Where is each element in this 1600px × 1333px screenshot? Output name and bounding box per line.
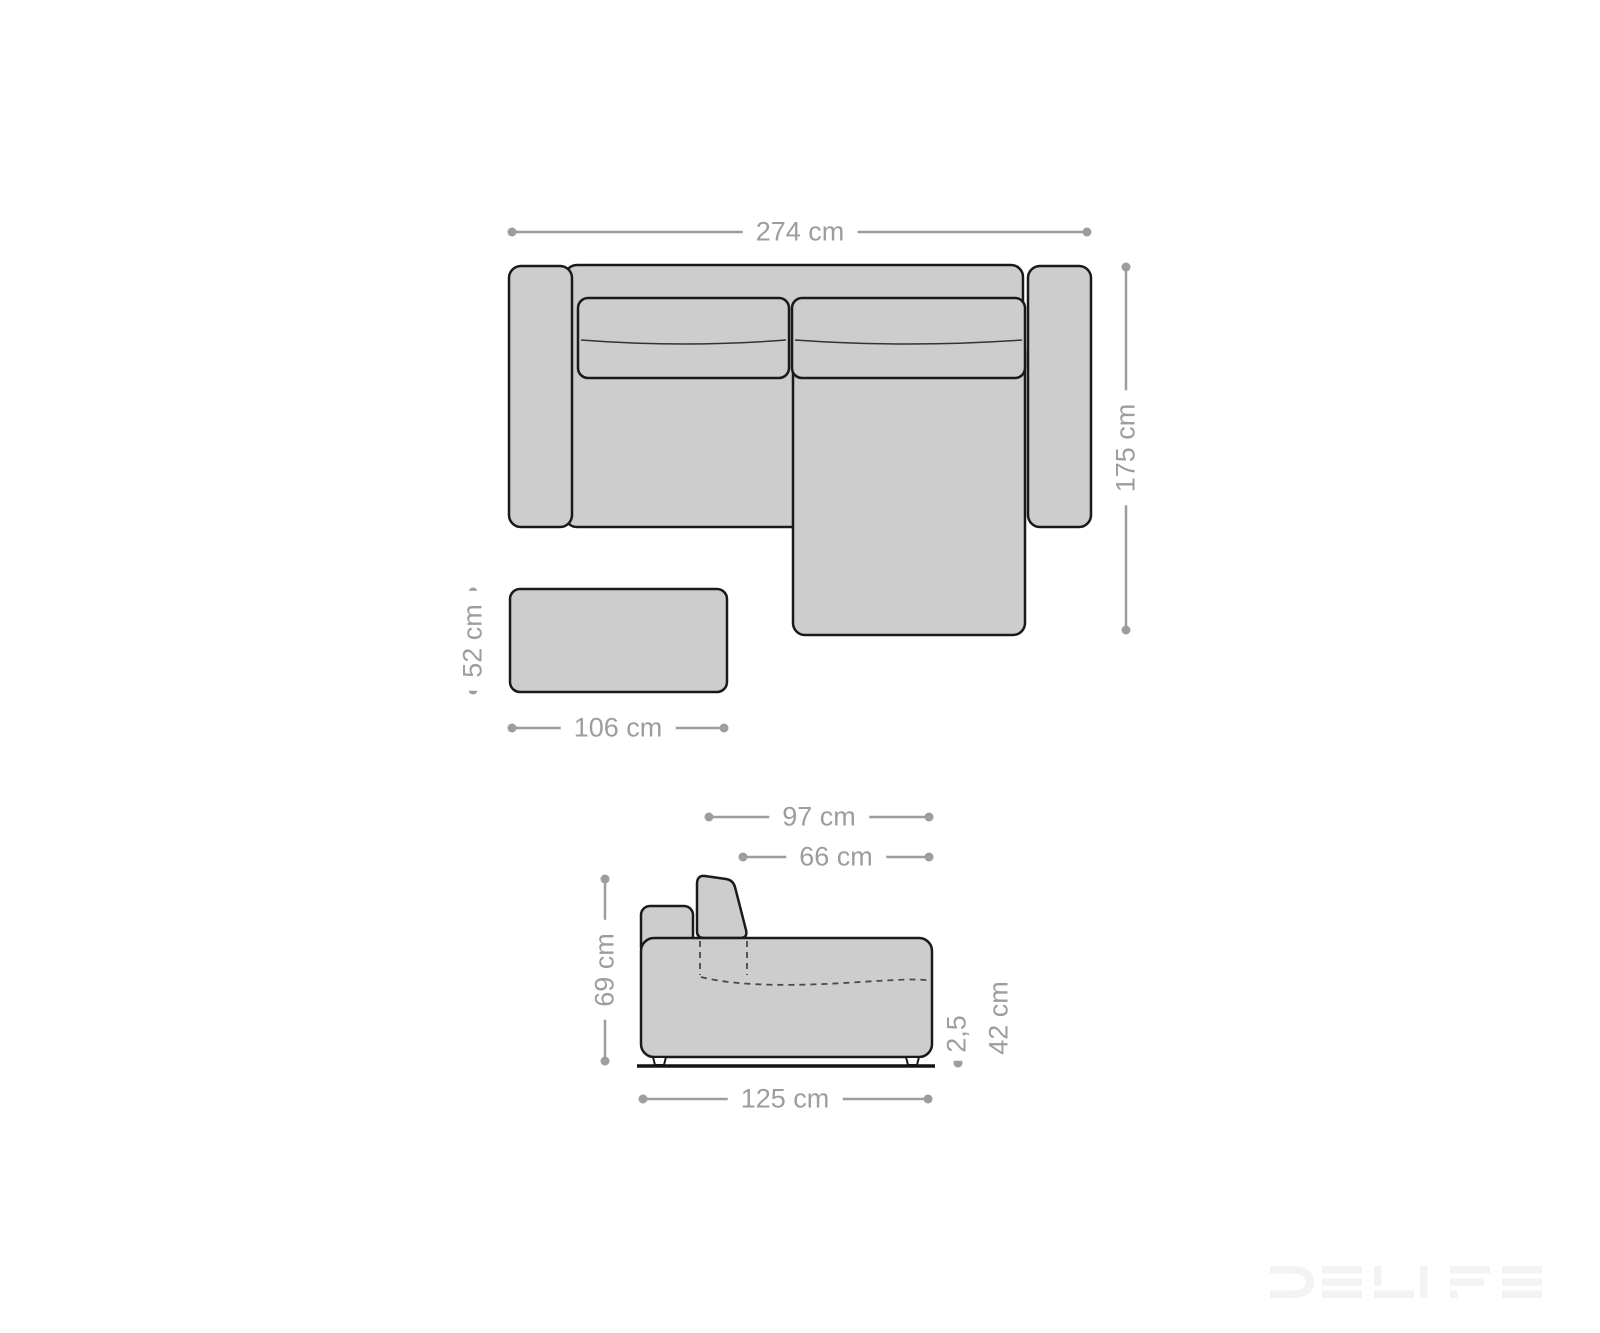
sofa-top-view [509, 265, 1091, 635]
side-body [641, 938, 932, 1057]
sofa-chaise-top-view [793, 340, 1025, 635]
furniture-dimension-drawing [0, 0, 1600, 1333]
dim-label-total-depth: 97 cm [769, 800, 869, 833]
dim-label-sofa-width: 274 cm [743, 215, 858, 248]
back-cushion-left [578, 298, 789, 378]
stool-top-view [510, 589, 727, 692]
dim-label-module-width: 125 cm [728, 1082, 843, 1115]
side-foot-left [653, 1057, 666, 1065]
armrest-left-top-view [509, 266, 572, 527]
side-tilted-cushion [697, 876, 746, 938]
dim-label-base-height: 2,5 [940, 1007, 973, 1061]
dim-label-seat-height: 42 cm [982, 968, 1015, 1068]
side-foot-right [906, 1057, 919, 1065]
stool-body [510, 589, 727, 692]
dim-label-seat-depth: 66 cm [786, 840, 886, 873]
dim-label-back-height: 69 cm [588, 920, 621, 1020]
dimension-diagram-page: 274 cm 175 cm 52 cm 106 cm 97 cm 66 cm 6… [0, 0, 1600, 1333]
dim-label-stool-width: 106 cm [561, 711, 676, 744]
armrest-right-top-view [1028, 266, 1091, 527]
delife-watermark-label [1270, 1266, 1542, 1298]
dim-label-stool-depth: 52 cm [456, 591, 489, 691]
sofa-side-view [637, 876, 935, 1066]
dim-label-sofa-depth: 175 cm [1109, 391, 1142, 506]
back-cushion-right [792, 298, 1025, 378]
